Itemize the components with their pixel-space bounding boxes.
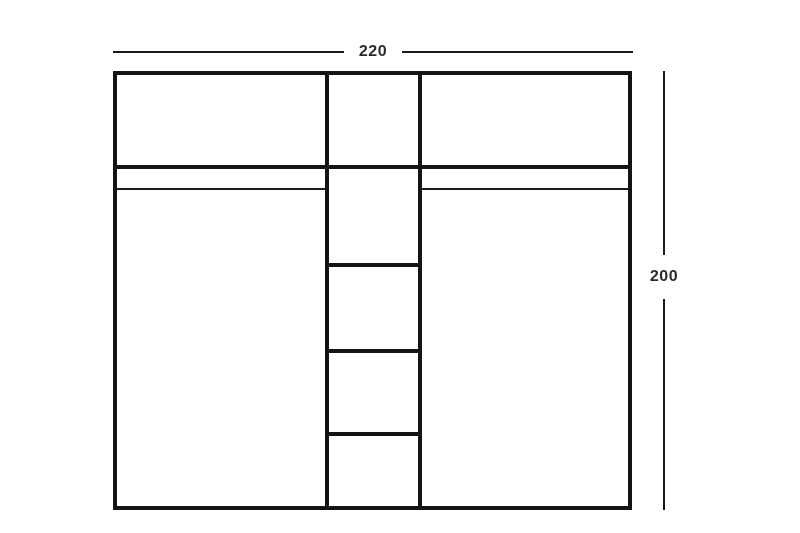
width-dimension-line-left (113, 51, 344, 53)
width-dimension-line-right (402, 51, 633, 53)
left-top-divider (117, 165, 325, 169)
height-dimension-line-top (663, 71, 665, 255)
shelf-divider-2 (329, 263, 418, 267)
left-trim-line (117, 188, 325, 190)
width-dimension: 220 (113, 43, 633, 61)
right-trim-line (422, 188, 628, 190)
shelf-divider-1 (329, 165, 418, 169)
diagram-canvas: 220 200 (0, 0, 800, 533)
left-door-panel (117, 75, 325, 506)
right-top-divider (422, 165, 628, 169)
width-dimension-label: 220 (359, 44, 387, 60)
height-dimension-line-bottom (663, 299, 665, 510)
shelf-divider-4 (329, 432, 418, 436)
height-dimension: 200 (646, 71, 682, 510)
shelf-divider-3 (329, 349, 418, 353)
center-shelf-column (325, 75, 422, 506)
wardrobe-outline (113, 71, 632, 510)
height-dimension-label: 200 (650, 269, 678, 285)
right-door-panel (422, 75, 628, 506)
